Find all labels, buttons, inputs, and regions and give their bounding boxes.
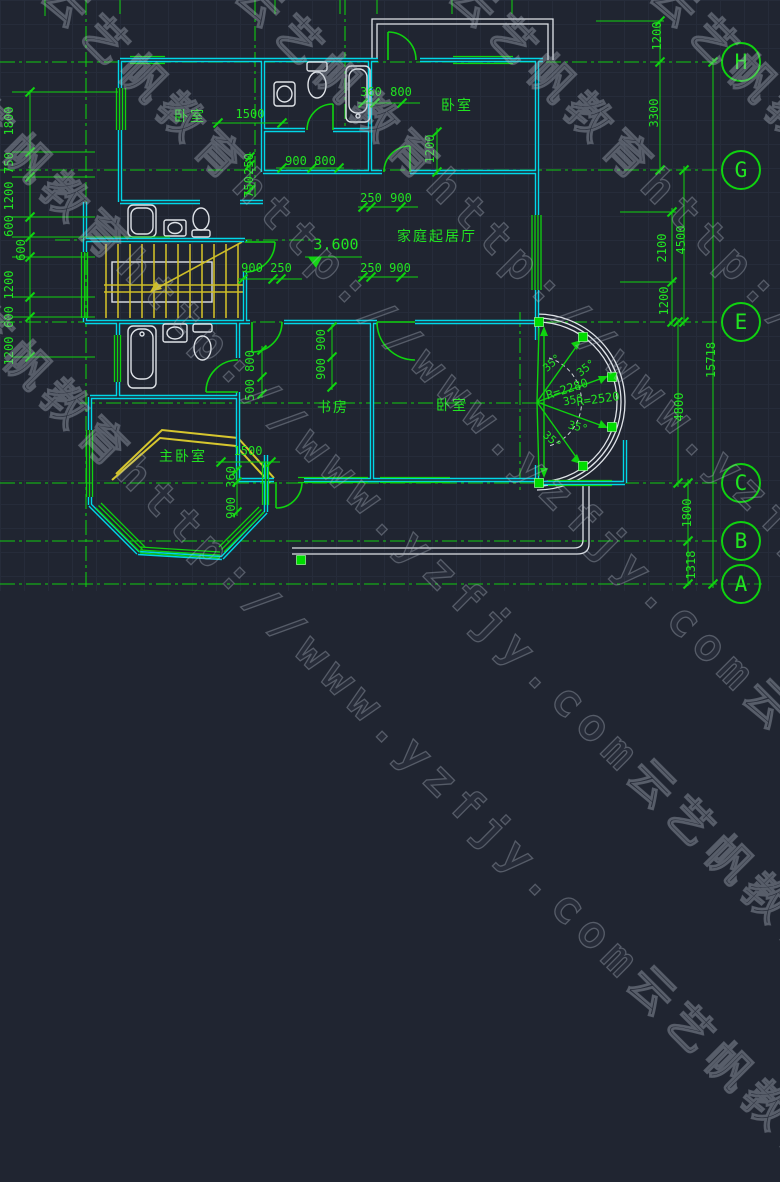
balcony-outline <box>372 19 553 60</box>
staircase <box>104 242 244 318</box>
dimension-text: 900 <box>315 329 327 351</box>
room-label-study: 书房 <box>317 401 349 415</box>
terrace-outline <box>292 486 589 554</box>
grid-axis-bubble-C: C <box>721 463 761 503</box>
dimension-text: 900 <box>390 192 412 204</box>
dimension-text: 1200 <box>3 271 15 300</box>
elevation-mark: 3.600 <box>313 238 358 253</box>
room-label-bedroom-se: 卧室 <box>436 399 468 413</box>
dimension-text: 800 <box>390 86 412 98</box>
room-label-bedroom-ne: 卧室 <box>441 99 473 113</box>
grid-axis-bubble-E: E <box>721 302 761 342</box>
grid-axis-bubble-H: H <box>721 42 761 82</box>
dimension-text: 500 <box>244 379 256 401</box>
dimension-text: 800 <box>314 155 336 167</box>
dimension-text: 1200 <box>3 182 15 211</box>
dimension-text: 750 <box>243 176 255 198</box>
dimension-text: 600 <box>15 239 27 261</box>
dimension-text: 4800 <box>673 393 685 422</box>
grid-axis-bubble-G: G <box>721 150 761 190</box>
room-label-bedroom-nw: 卧室 <box>174 110 206 124</box>
room-label-family-living: 家庭起居厅 <box>397 230 477 244</box>
dimension-text: 4500 <box>675 226 687 255</box>
dimension-text: 900 <box>285 155 307 167</box>
dimension-text: 600 <box>3 215 15 237</box>
stair-landing <box>112 262 212 302</box>
selection-grips[interactable] <box>297 318 617 565</box>
dimension-text: 250 <box>360 262 382 274</box>
dimension-text: 600 <box>3 306 15 328</box>
dimension-text: 900 <box>241 262 263 274</box>
dimension-text: 250 <box>270 262 292 274</box>
dimension-text: 800 <box>244 350 256 372</box>
dimension-text: 1200 <box>424 135 436 164</box>
grid-axis-bubble-B: B <box>721 521 761 561</box>
dimension-text: 900 <box>389 262 411 274</box>
dimension-text: 3300 <box>648 99 660 128</box>
dimension-text: 1800 <box>681 499 693 528</box>
dimension-text: 15718 <box>705 342 717 378</box>
room-label-master-bedroom: 主卧室 <box>159 450 207 464</box>
dimension-text: 1200 <box>658 287 670 316</box>
dimension-text: 1500 <box>234 445 263 457</box>
dimension-text: 900 <box>315 358 327 380</box>
dimension-text: 900 <box>225 497 237 519</box>
dimension-text: 750 <box>3 152 15 174</box>
dimension-text: 1500 <box>236 108 265 120</box>
dimension-text: 1800 <box>3 107 15 136</box>
grid-axis-bubble-A: A <box>721 564 761 604</box>
dimension-text: 2100 <box>656 234 668 263</box>
dimension-text: 250 <box>360 192 382 204</box>
dimension-text: 1318 <box>685 551 697 580</box>
dimension-text: 360 <box>225 466 237 488</box>
dimension-text: 250 <box>243 153 255 175</box>
dimension-text: 360 <box>360 86 382 98</box>
dimension-text: 1200 <box>651 22 663 51</box>
cad-canvas[interactable]: 卧室卧室家庭起居厅书房卧室主卧室150090080036080025090090… <box>0 0 780 591</box>
dimension-text: 1200 <box>3 337 15 366</box>
